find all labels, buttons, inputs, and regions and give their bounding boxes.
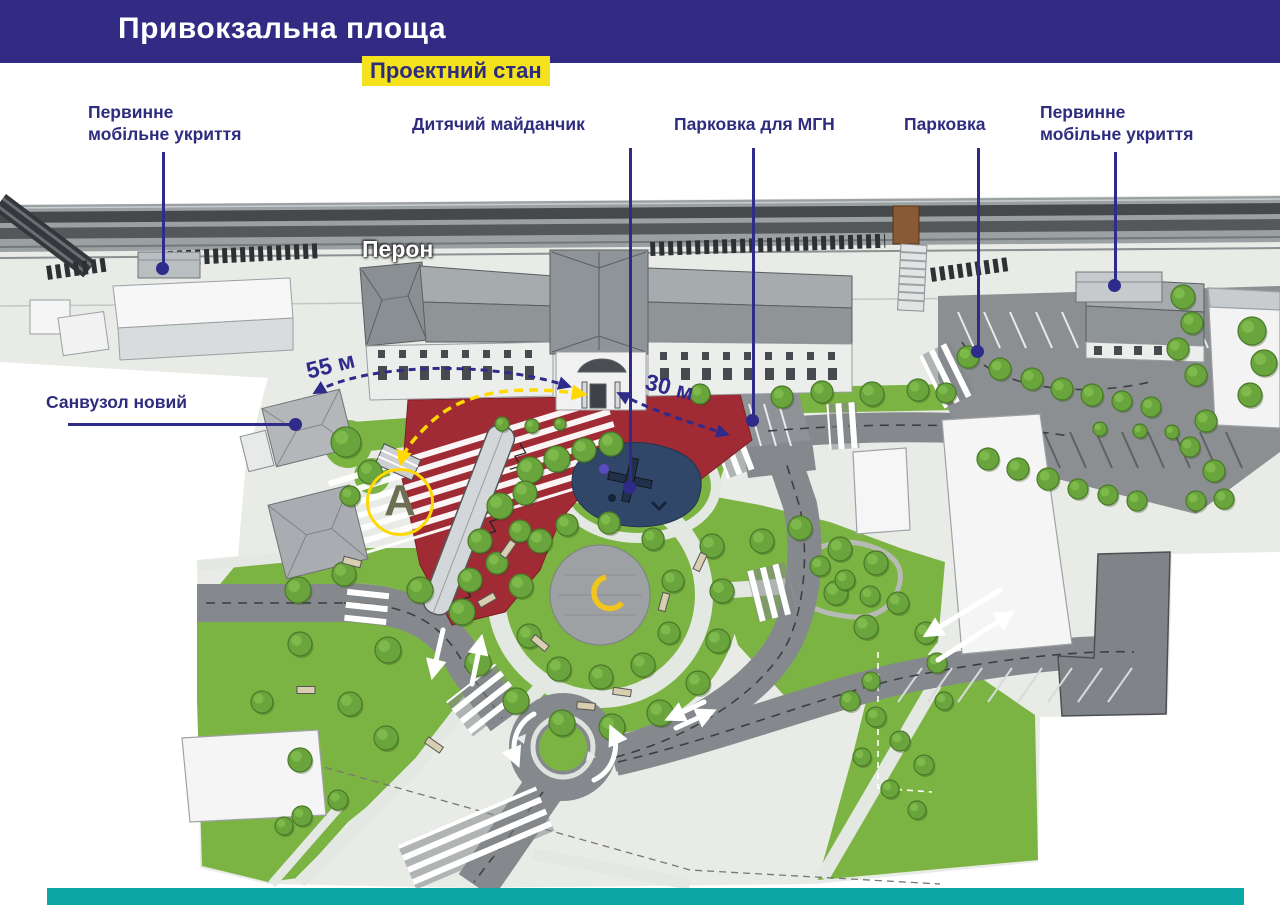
- page-title: Привокзальна площа: [118, 12, 446, 46]
- leader-line-shelter-left: [162, 152, 165, 268]
- label-peron: Перон: [362, 236, 433, 263]
- footer-bar: [47, 888, 1244, 905]
- page-root: Привокзальна площа Проектний стан Первин…: [0, 0, 1280, 905]
- central-plaza: [550, 545, 650, 645]
- label-shelter-right: Первинне мобільне укриття: [1040, 102, 1193, 146]
- leader-line-parking: [977, 148, 980, 351]
- bench: [577, 702, 596, 711]
- leader-dot-shelter-left: [156, 262, 169, 275]
- bench: [297, 687, 315, 694]
- leader-line-playground: [629, 148, 632, 487]
- crosswalk: [826, 402, 859, 450]
- leader-dot-parking-mgn: [746, 414, 759, 427]
- leader-line-sanvuzol: [68, 423, 296, 426]
- leader-line-parking-mgn: [752, 148, 755, 420]
- header-bar: Привокзальна площа: [0, 0, 1280, 63]
- crosswalk: [344, 582, 390, 626]
- label-parking-mgn: Парковка для МГН: [674, 114, 835, 136]
- label-parking: Парковка: [904, 114, 985, 136]
- project-state-badge: Проектний стан: [362, 56, 550, 86]
- leader-dot-parking: [971, 345, 984, 358]
- leader-dot-shelter-right: [1108, 279, 1121, 292]
- leader-dot-sanvuzol: [289, 418, 302, 431]
- leader-line-shelter-right: [1114, 152, 1117, 285]
- label-sanvuzol: Санвузол новий: [46, 392, 187, 414]
- label-shelter-left: Первинне мобільне укриття: [88, 102, 241, 146]
- marker-a: A: [366, 468, 434, 536]
- leader-dot-playground: [623, 481, 636, 494]
- label-playground: Дитячий майданчик: [412, 114, 585, 136]
